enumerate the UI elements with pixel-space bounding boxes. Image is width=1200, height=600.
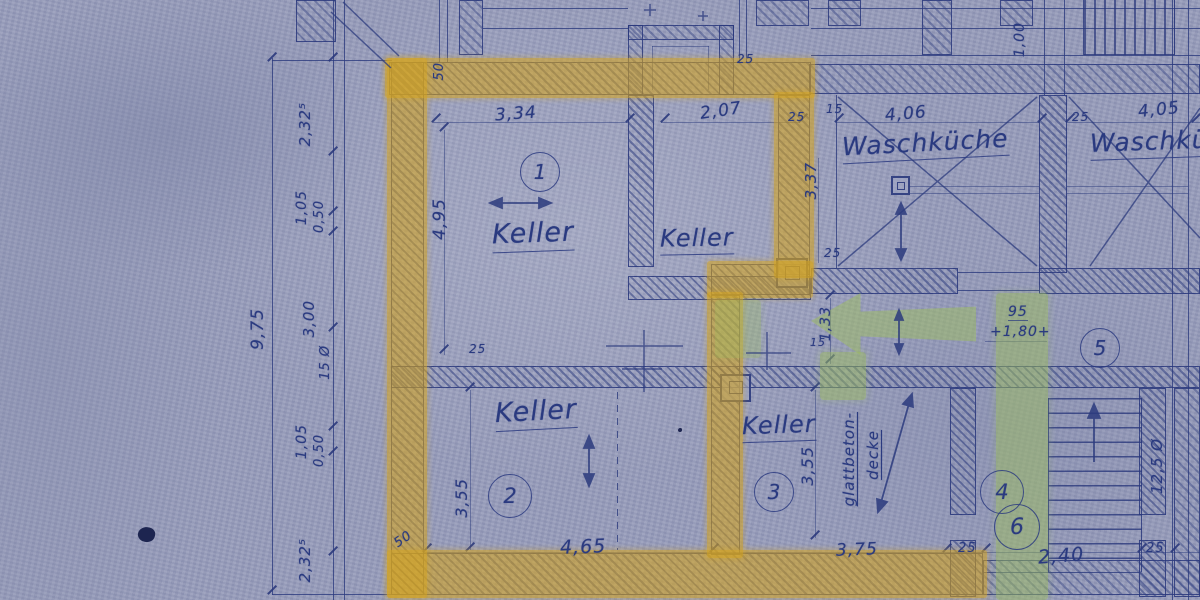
dim-k1-width: 3,34 bbox=[494, 103, 537, 126]
tick-25: 25 bbox=[788, 110, 805, 124]
tick-25: 25 bbox=[958, 541, 977, 556]
highlight-green-blob bbox=[820, 352, 866, 400]
dim-corridor-height: 1,33 bbox=[818, 306, 834, 341]
dim-k2-height: 3,55 bbox=[452, 478, 471, 518]
wall-wk-bottom-right bbox=[1039, 268, 1200, 294]
ceiling-note-line2: decke bbox=[864, 430, 882, 480]
dim-kmid-width: 2,07 bbox=[699, 98, 743, 124]
room-number-circle-1: 1 bbox=[520, 152, 560, 192]
wall-top-right bbox=[809, 64, 1200, 94]
room-keller3-label: Keller bbox=[741, 410, 816, 444]
stair-note: 12,5 Ø bbox=[1148, 438, 1166, 494]
pier bbox=[922, 0, 952, 55]
dim-k1-height: 4,95 bbox=[430, 198, 450, 240]
light-well-grate bbox=[1083, 0, 1175, 55]
dim-line-k1-height bbox=[444, 130, 445, 355]
dim-k3-width: 3,75 bbox=[836, 539, 879, 560]
pier bbox=[459, 0, 483, 55]
dim-wk2-width: 4,05 bbox=[1137, 98, 1181, 122]
chain-total: 9,75 bbox=[248, 308, 268, 350]
chain-050-top: 0,50 bbox=[312, 200, 327, 233]
highlight-yellow-left bbox=[387, 58, 427, 598]
highlight-green-arrow bbox=[811, 293, 976, 355]
tick-25: 25 bbox=[469, 342, 486, 356]
pier bbox=[756, 0, 809, 26]
chain-105-top: 1,05 bbox=[294, 190, 310, 225]
chain-connector-top bbox=[272, 60, 392, 61]
room-waschkueche2-label: Waschküche bbox=[1089, 123, 1200, 161]
dim-wk1-width: 4,06 bbox=[884, 102, 927, 126]
chain-105-bottom: 1,05 bbox=[294, 424, 310, 459]
tick-25: 25 bbox=[737, 52, 754, 66]
site-line bbox=[447, 0, 448, 62]
site-line-top bbox=[483, 8, 628, 9]
chain-connector-bottom bbox=[272, 594, 392, 595]
tick-15: 15 bbox=[826, 102, 843, 116]
chain-2325-bottom: 2,32⁵ bbox=[296, 538, 314, 582]
tick-25: 25 bbox=[1072, 110, 1089, 124]
tick-25: 25 bbox=[824, 246, 841, 260]
room-keller1-label: Keller bbox=[491, 217, 574, 254]
room-number-circle-3: 3 bbox=[754, 472, 794, 512]
highlight-yellow-bottom bbox=[387, 550, 987, 598]
ceiling-note: glattbeton- decke bbox=[840, 412, 892, 542]
ceiling-note-line1: glattbeton- bbox=[840, 412, 858, 506]
room-keller2-label: Keller bbox=[494, 394, 578, 432]
dim-line-k2-height bbox=[470, 390, 471, 550]
dim-door-span: +1,80+ bbox=[990, 324, 1051, 340]
site-line-top bbox=[483, 28, 628, 29]
tick-25: 25 bbox=[1146, 541, 1165, 556]
dim-chain-inner-line-a bbox=[333, 0, 334, 600]
room-number-circle-2: 2 bbox=[488, 474, 532, 518]
room-number-circle-6: 6 bbox=[994, 504, 1040, 550]
dim-chain-inner-line-b bbox=[344, 0, 345, 600]
highlight-green-blob bbox=[715, 300, 761, 358]
wall-50-top: 50 bbox=[432, 62, 447, 81]
pier bbox=[828, 0, 861, 26]
chain-2325-top: 2,32⁵ bbox=[296, 102, 314, 146]
dim-top-right: 1,00 bbox=[1012, 22, 1028, 57]
duct-square bbox=[891, 176, 910, 195]
room-number-circle-5: 5 bbox=[1080, 328, 1120, 368]
wall-wk-bottom-left bbox=[811, 268, 958, 294]
ink-blot bbox=[136, 525, 156, 544]
dim-stair-width: 2,40 bbox=[1037, 543, 1085, 568]
room-waschkueche1-label: Waschküche bbox=[841, 124, 1009, 165]
room-keller-mid-label: Keller bbox=[660, 223, 734, 255]
dim-chain-outer-line bbox=[272, 58, 273, 595]
dim-k3-height: 3,55 bbox=[798, 446, 817, 486]
chain-050-bottom: 0,50 bbox=[312, 434, 327, 467]
dim-k2-width: 4,65 bbox=[560, 535, 607, 559]
blueprint-canvas: Keller Keller Waschküche Waschküche Kell… bbox=[0, 0, 1200, 600]
dim-wk1-depth: 3,37 bbox=[802, 162, 820, 199]
site-line-top bbox=[811, 55, 1200, 56]
dashed-partition bbox=[617, 392, 618, 550]
chain-300: 3,00 bbox=[300, 300, 318, 337]
dim-line-top bbox=[836, 122, 1039, 123]
pier-top-left bbox=[296, 0, 336, 42]
chain-15-dia: 15 Ø bbox=[318, 345, 333, 380]
ink-speck bbox=[678, 428, 682, 432]
wall-stair-left-upper bbox=[950, 388, 976, 515]
wall-middle-long bbox=[391, 366, 1200, 388]
wall-k1-right bbox=[628, 95, 654, 267]
dim-door-width: 95 bbox=[1008, 304, 1028, 321]
wall-wk-divider bbox=[1039, 95, 1067, 273]
site-line bbox=[439, 0, 440, 62]
